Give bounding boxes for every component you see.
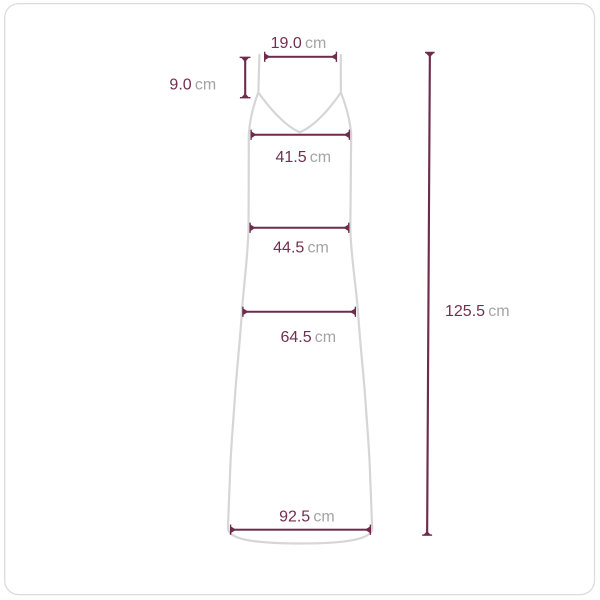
svg-text:125.5cm: 125.5cm <box>445 303 510 320</box>
svg-text:64.5cm: 64.5cm <box>280 329 336 346</box>
svg-text:19.0cm: 19.0cm <box>271 35 327 52</box>
svg-text:92.5cm: 92.5cm <box>279 509 335 526</box>
svg-text:41.5cm: 41.5cm <box>275 149 331 166</box>
svg-text:44.5cm: 44.5cm <box>273 239 329 256</box>
